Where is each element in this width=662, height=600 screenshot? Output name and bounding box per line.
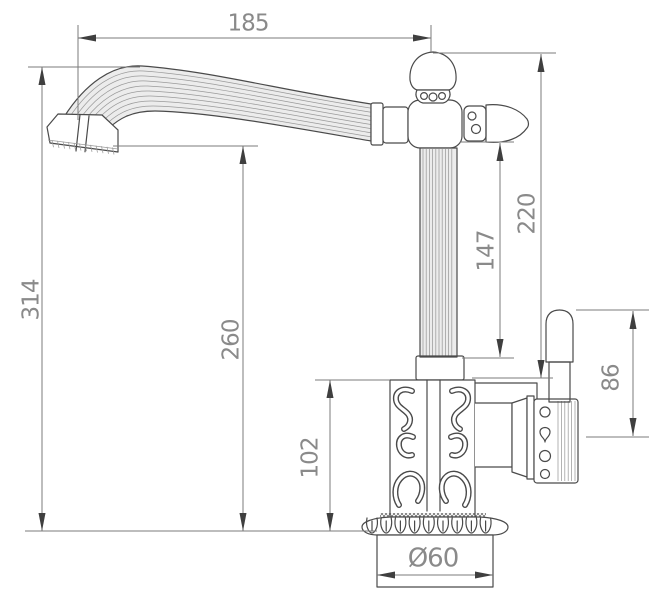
- dimension-outlet-height: 260: [113, 146, 258, 531]
- spout-outlet: [47, 114, 118, 155]
- dim-label-86: 86: [599, 364, 625, 392]
- dim-label-260: 260: [219, 319, 245, 360]
- dim-label-220: 220: [515, 193, 541, 234]
- dim-label-base-diameter: Ø60: [408, 544, 459, 574]
- dim-label-147: 147: [474, 231, 500, 272]
- faucet-dimension-drawing: 185 314 260 220 147 102 86: [0, 0, 662, 600]
- drawing-canvas: 185 314 260 220 147 102 86: [0, 0, 662, 600]
- dim-label-314: 314: [19, 279, 45, 320]
- dim-label-185: 185: [228, 11, 269, 37]
- handle-lever: [546, 310, 573, 402]
- faucet-head: [408, 100, 462, 148]
- base-rim: [362, 513, 508, 535]
- handle-base-knob: [534, 399, 578, 483]
- dim-label-102: 102: [298, 438, 324, 479]
- top-finial-icon: [410, 52, 456, 103]
- riser-column: [420, 148, 457, 357]
- dimension-side-knob-to-collar: 147: [460, 142, 514, 358]
- dimension-body-height: 102: [298, 380, 391, 531]
- knurled-collar: [416, 356, 464, 380]
- spout-flange: [371, 103, 408, 145]
- dimension-handle-height: 86: [576, 310, 649, 437]
- ornate-body: [390, 380, 475, 517]
- side-arm: [475, 383, 537, 479]
- side-finial-icon: [464, 105, 529, 143]
